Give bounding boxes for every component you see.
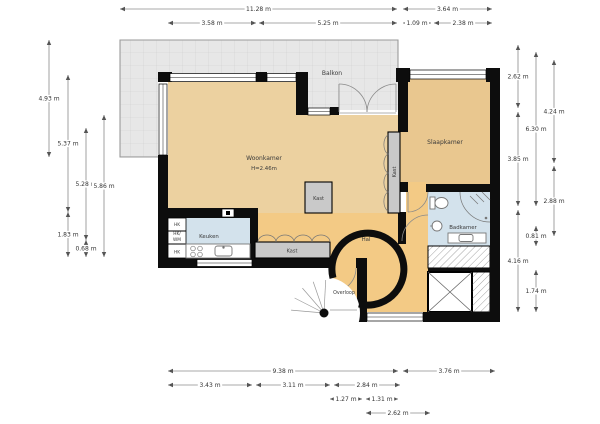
dimension-label: 2.62 m	[507, 74, 528, 81]
hk-label-top: HK	[174, 222, 180, 228]
dimension: 1.74 m	[524, 270, 548, 312]
dimension-label: 3.76 m	[438, 368, 459, 375]
kitchen-counter	[186, 244, 250, 258]
dimension-label: 11.28 m	[246, 6, 271, 13]
dimension-label: 1.74 m	[525, 288, 546, 295]
room-label-badkamer: Badkamer	[449, 225, 477, 231]
bedroom-floor	[400, 78, 490, 184]
window-balcony-step	[308, 108, 330, 115]
dimension-label: 0.81 m	[525, 233, 546, 240]
room-label-woonkamer: Woonkamer	[246, 155, 282, 162]
dimension-label: 1.09 m	[406, 20, 427, 27]
elevator-shaft	[428, 272, 472, 312]
room-label-keuken: Keuken	[199, 234, 219, 240]
window-hall-bottom	[367, 313, 423, 321]
vanity-icon	[448, 233, 486, 243]
closet-label-center: Kast	[313, 196, 324, 202]
dimension-label: 4.93 m	[38, 96, 59, 103]
hall-corridor-floor	[406, 192, 428, 258]
duct-niche	[222, 209, 234, 217]
dimension-label: 3.85 m	[507, 156, 528, 163]
dimension: 11.28 m	[120, 5, 397, 13]
dimension: 0.68 m	[74, 240, 98, 257]
room-height-note: H=2.46m	[251, 166, 277, 172]
faucet-icon	[222, 246, 224, 248]
dimension-label: 6.30 m	[525, 126, 546, 133]
dimension-label: 3.58 m	[201, 20, 222, 27]
dimension-label: 4.24 m	[543, 109, 564, 116]
window-livingroom-top-mid	[267, 74, 296, 82]
dimension: 4.24 m	[542, 60, 566, 163]
dimension: 5.25 m	[259, 19, 397, 27]
dimension: 4.93 m	[37, 40, 61, 157]
floor-plan-canvas: Balkon Woonkamer H=2.46m Slaapkamer Keuk…	[0, 0, 600, 424]
dimension: 9.38 m	[168, 367, 398, 375]
dimension-label: 2.84 m	[356, 382, 377, 389]
dimension-label: 5.25 m	[317, 20, 338, 27]
shaft-hatched-vertical	[472, 272, 490, 312]
hk-wm-label-line1: HK/	[173, 231, 181, 237]
room-label-overloop: Overloop	[333, 290, 355, 296]
hk-wm-label-line2: WM	[173, 237, 181, 243]
dimension: 4.16 m	[506, 210, 530, 312]
dimension: 3.76 m	[403, 367, 495, 375]
dimension: 3.58 m	[168, 19, 256, 27]
dimension-label: 5.86 m	[93, 183, 114, 190]
dimension-label: 9.38 m	[272, 368, 293, 375]
dimension-label: 2.88 m	[543, 198, 564, 205]
dimension: 2.62 m	[366, 409, 430, 417]
dimension: 3.64 m	[403, 5, 492, 13]
dimension: 3.11 m	[256, 381, 330, 389]
window-livingroom-top-left	[170, 74, 256, 82]
dimension: 0.81 m	[524, 226, 548, 246]
dimension: 2.62 m	[506, 45, 530, 108]
window-bedroom-top	[410, 70, 486, 79]
dimension-label: 3.43 m	[199, 382, 220, 389]
stair-hub-icon	[320, 309, 329, 318]
dimension-label: 5.37 m	[57, 141, 78, 148]
room-label-slaapkamer: Slaapkamer	[427, 139, 463, 146]
bedroom-door-threshold	[408, 182, 426, 192]
window-livingroom-left	[159, 84, 167, 155]
dimension: 1.27 m	[330, 395, 362, 403]
window-kitchen-bottom	[197, 260, 252, 267]
dimension-label: 3.64 m	[437, 6, 458, 13]
dimension-label: 1.31 m	[371, 396, 392, 403]
dimension-label: 4.16 m	[507, 258, 528, 265]
dimension: 1.31 m	[366, 395, 398, 403]
closet-label-wardrobe: Kast	[287, 249, 298, 255]
dimension-label: 1.27 m	[335, 396, 356, 403]
dimension: 1.09 m	[403, 19, 431, 27]
closet-label-bedroom: Kast	[392, 167, 398, 178]
dimension-label: 1.83 m	[57, 232, 78, 239]
dimension: 5.86 m	[92, 115, 116, 257]
toilet-icon	[430, 197, 448, 209]
dimension-label: 0.68 m	[75, 246, 96, 253]
room-label-balkon: Balkon	[322, 70, 342, 77]
room-label-hal: Hal	[362, 237, 371, 243]
shaft-hatched-horizontal	[428, 246, 490, 268]
dimension: 2.38 m	[434, 19, 492, 27]
dimension-label: 3.11 m	[282, 382, 303, 389]
hk-label-bottom: HK	[174, 250, 180, 256]
dimension: 2.88 m	[542, 166, 566, 236]
dimension-label: 2.38 m	[452, 20, 473, 27]
floor-plan: Balkon Woonkamer H=2.46m Slaapkamer Keuk…	[0, 0, 600, 424]
dimension: 2.84 m	[334, 381, 400, 389]
dimension-label: 2.62 m	[387, 410, 408, 417]
dimension: 3.43 m	[168, 381, 252, 389]
